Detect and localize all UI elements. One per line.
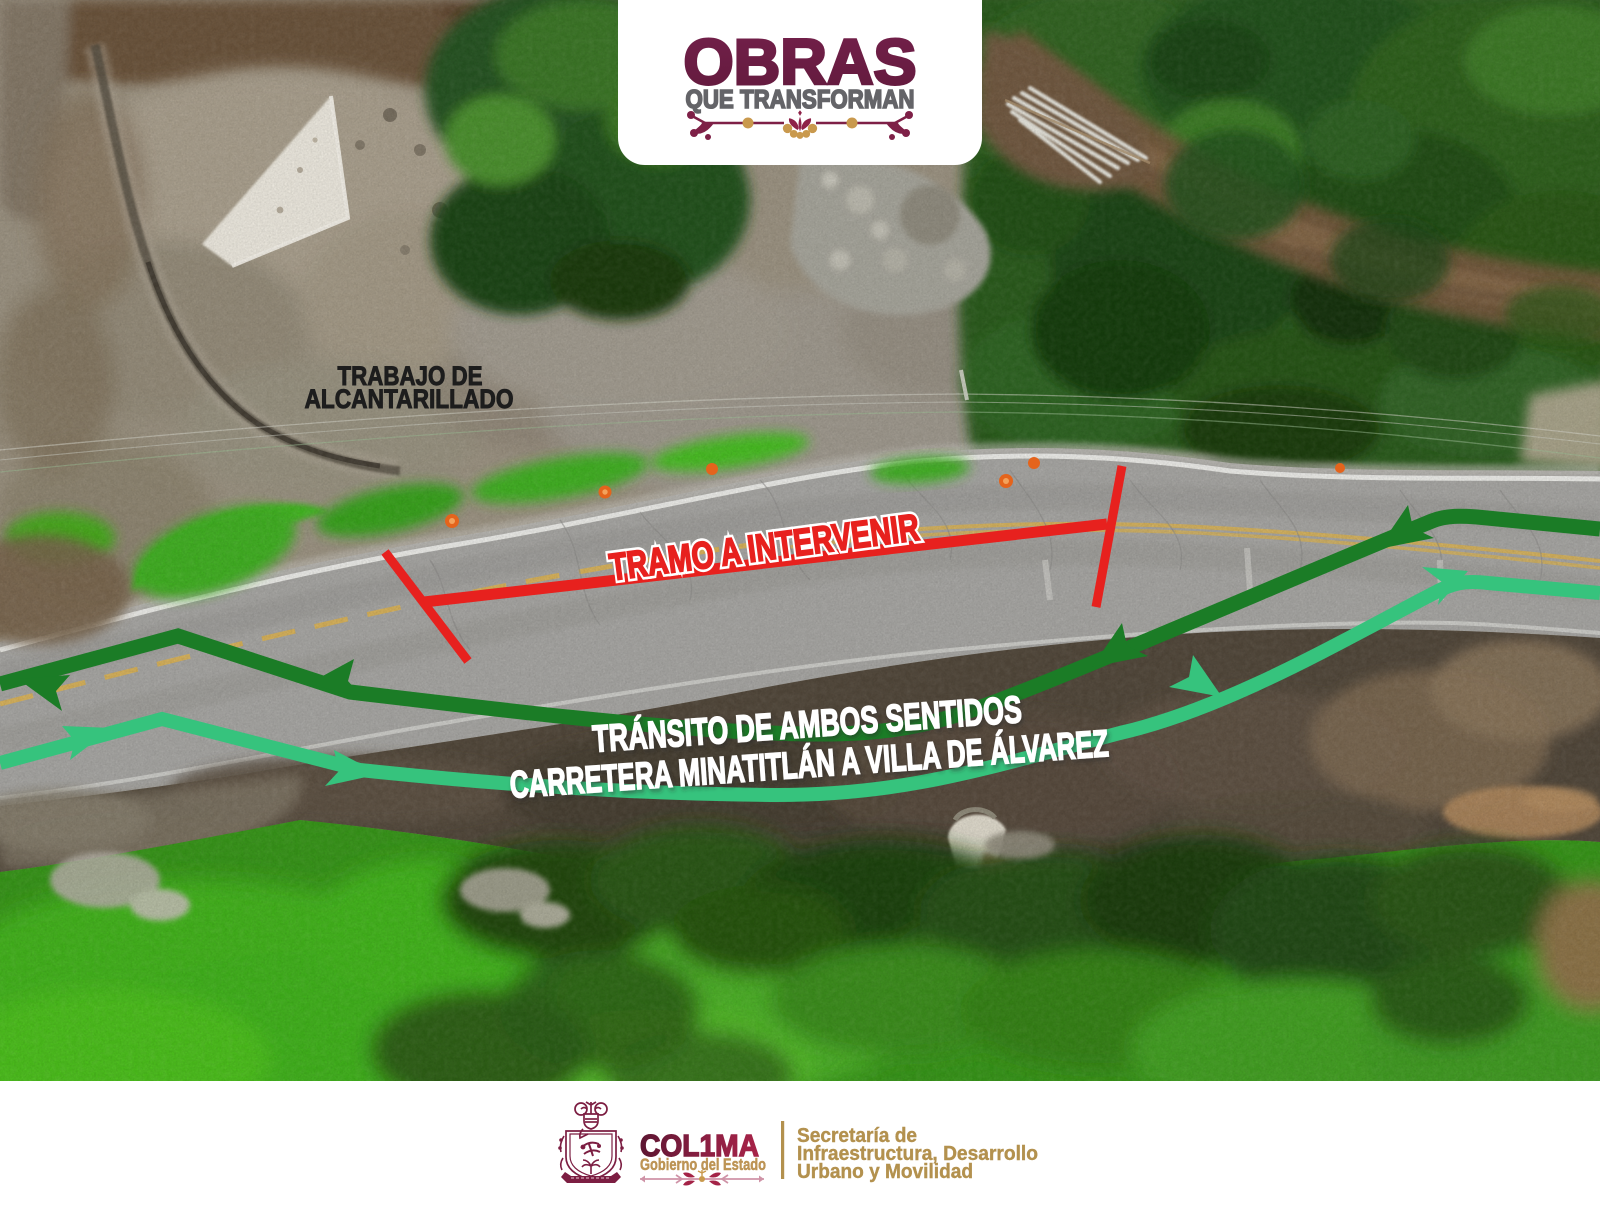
svg-text:ALCANTARILLADO: ALCANTARILLADO (305, 384, 514, 414)
svg-text:QUE TRANSFORMAN: QUE TRANSFORMAN (686, 86, 915, 114)
svg-text:Urbano y Movilidad: Urbano y Movilidad (797, 1160, 973, 1183)
svg-text:Gobierno del Estado: Gobierno del Estado (640, 1156, 766, 1174)
